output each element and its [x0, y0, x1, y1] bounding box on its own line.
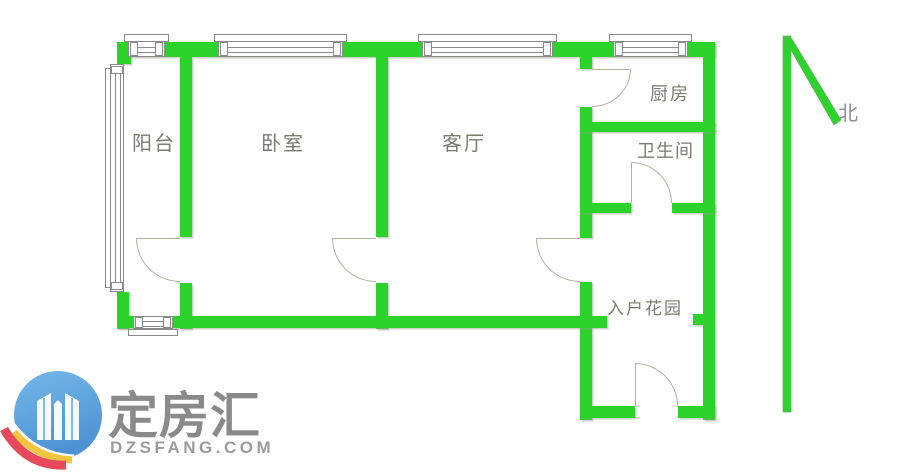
window-cap [155, 42, 163, 56]
wall-stub-right [693, 314, 703, 325]
door-bathroom [631, 162, 672, 203]
window-kitchen [613, 41, 688, 57]
wall-bathroom-garden-left [580, 203, 631, 213]
wall-kitchen-bathroom [580, 122, 715, 132]
window-cap [333, 42, 341, 56]
window-cap [163, 317, 171, 328]
window-balcony-bottom [133, 316, 173, 329]
window-cap [111, 282, 123, 290]
door-balcony [136, 238, 180, 282]
room-label-living-room: 客厅 [442, 127, 486, 156]
window-glass [137, 47, 156, 53]
window-sill-balcony-bottom [128, 329, 178, 336]
window-cap [424, 42, 432, 56]
wall-bathroom-garden-right [672, 203, 715, 213]
window-balcony-top [128, 41, 165, 57]
door-bedroom [332, 238, 376, 282]
north-label: 北 [838, 97, 858, 126]
window-glass [622, 47, 679, 53]
window-glass [115, 73, 121, 283]
room-label-bathroom: 卫生间 [637, 137, 694, 163]
wall-right-exterior [703, 42, 715, 420]
window-glass [431, 47, 544, 53]
wall-bottom-main [117, 316, 607, 328]
window-living [422, 41, 553, 57]
north-arrow-icon [755, 28, 855, 420]
window-glass [142, 321, 164, 327]
door-kitchen [592, 69, 631, 107]
window-cap [135, 317, 143, 328]
wall-balcony-bedroom-upper [180, 57, 192, 237]
window-bedroom [218, 41, 343, 57]
wall-garden-bottom-right [678, 406, 715, 418]
window-cap [543, 42, 551, 56]
window-cap [220, 42, 228, 56]
wall-garden-bottom-left [580, 406, 635, 418]
floorplan-image: 阳台 卧室 客厅 厨房 卫生间 入户花园 北 定房汇 DZSFANG.COM [0, 0, 900, 472]
window-cap [615, 42, 623, 56]
door-living-garden [536, 238, 580, 282]
room-label-kitchen: 厨房 [650, 80, 690, 106]
brand-logo-icon [10, 368, 110, 468]
wall-bedroom-living-upper [376, 57, 388, 237]
room-label-bedroom: 卧室 [261, 127, 305, 156]
brand-website: DZSFANG.COM [110, 438, 274, 458]
wall-living-kitchen-top [580, 57, 592, 69]
window-cap [111, 66, 123, 74]
window-cap [678, 42, 686, 56]
wall-garden-left-lower [580, 282, 592, 420]
room-label-balcony: 阳台 [132, 127, 176, 156]
room-label-entry-garden: 入户花园 [607, 294, 683, 319]
door-garden-entry [635, 363, 678, 406]
window-balcony-left [110, 64, 124, 292]
window-cap [130, 42, 138, 56]
window-glass [227, 47, 334, 53]
